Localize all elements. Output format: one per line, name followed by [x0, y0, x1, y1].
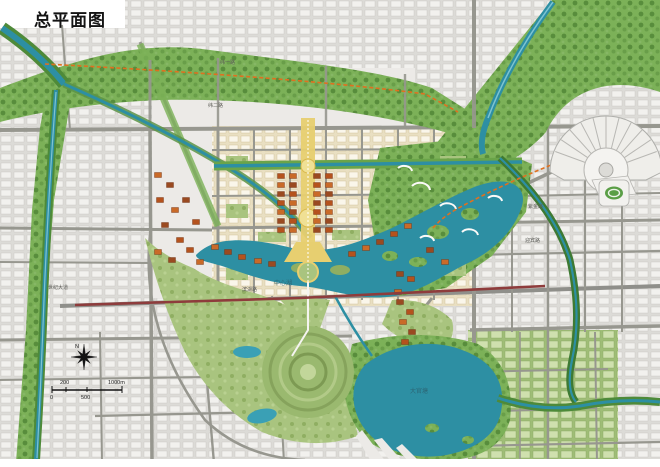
- orange-building: [407, 310, 414, 315]
- orange-building: [442, 260, 449, 265]
- garden-circle: [262, 326, 354, 418]
- orange-building: [326, 219, 333, 224]
- orange-building: [326, 210, 333, 215]
- road-label-wei2: 纬二路: [208, 102, 223, 109]
- road-label-shiji: 世纪大道: [48, 284, 68, 291]
- orange-building: [278, 174, 285, 179]
- orange-building: [157, 198, 164, 203]
- orange-building: [405, 224, 412, 229]
- scale-200: 200: [60, 380, 69, 386]
- masterplan-map: N 200 1000m 0 500 中心湖 大官塘 纬一路 纬二路 紫金路 迎宾…: [0, 0, 660, 467]
- page-title: 总平面图: [34, 6, 106, 31]
- orange-building: [167, 183, 174, 188]
- orange-building: [278, 192, 285, 197]
- orange-building: [169, 258, 176, 263]
- orange-building: [349, 252, 356, 257]
- orange-building: [278, 201, 285, 206]
- orange-building: [314, 219, 321, 224]
- orange-building: [155, 173, 162, 178]
- road-label-zijin: 紫金路: [528, 203, 543, 210]
- orange-building: [239, 255, 246, 260]
- orange-building: [278, 219, 285, 224]
- orange-building: [397, 272, 404, 277]
- orange-building: [290, 201, 297, 206]
- orange-building: [326, 174, 333, 179]
- orange-building: [290, 192, 297, 197]
- orange-building: [278, 228, 285, 233]
- orange-building: [397, 300, 404, 305]
- orange-building: [269, 262, 276, 267]
- orange-building: [172, 208, 179, 213]
- road-label-wei1: 纬一路: [220, 59, 235, 66]
- stadium-icon: [599, 180, 629, 206]
- orange-building: [391, 232, 398, 237]
- south-lake-label: 大官塘: [410, 387, 428, 395]
- masterplan-page: 总平面图: [0, 0, 660, 467]
- orange-building: [377, 240, 384, 245]
- orange-building: [290, 210, 297, 215]
- orange-building: [290, 228, 297, 233]
- orange-building: [290, 174, 297, 179]
- orange-building: [177, 238, 184, 243]
- orange-building: [326, 192, 333, 197]
- orange-building: [314, 228, 321, 233]
- orange-building: [314, 174, 321, 179]
- orange-building: [400, 320, 407, 325]
- orange-building: [314, 201, 321, 206]
- orange-building: [290, 183, 297, 188]
- orange-building: [255, 259, 262, 264]
- orange-building: [314, 192, 321, 197]
- bottom-margin: [0, 459, 660, 467]
- scale-0: 0: [50, 395, 53, 401]
- orange-building: [155, 250, 162, 255]
- orange-building: [314, 183, 321, 188]
- center-lake-label: 中心湖: [274, 279, 292, 287]
- road-label-yingbin: 迎宾路: [525, 237, 540, 244]
- orange-building: [290, 219, 297, 224]
- orange-building: [409, 330, 416, 335]
- orange-building: [326, 228, 333, 233]
- scale-1000: 1000m: [108, 380, 125, 386]
- orange-building: [326, 183, 333, 188]
- orange-building: [162, 223, 169, 228]
- orange-building: [363, 246, 370, 251]
- orange-building: [278, 210, 285, 215]
- orange-building: [183, 198, 190, 203]
- orange-building: [197, 260, 204, 265]
- orange-building: [278, 183, 285, 188]
- orange-building: [187, 248, 194, 253]
- orange-building: [326, 201, 333, 206]
- road-label-binhu: 滨湖路: [242, 286, 257, 293]
- orange-building: [212, 245, 219, 250]
- orange-building: [408, 277, 415, 282]
- compass-north-label: N: [75, 344, 79, 350]
- orange-building: [314, 210, 321, 215]
- orange-building: [193, 220, 200, 225]
- scale-500: 500: [81, 395, 90, 401]
- orange-building: [427, 248, 434, 253]
- orange-building: [402, 340, 409, 345]
- orange-building: [225, 250, 232, 255]
